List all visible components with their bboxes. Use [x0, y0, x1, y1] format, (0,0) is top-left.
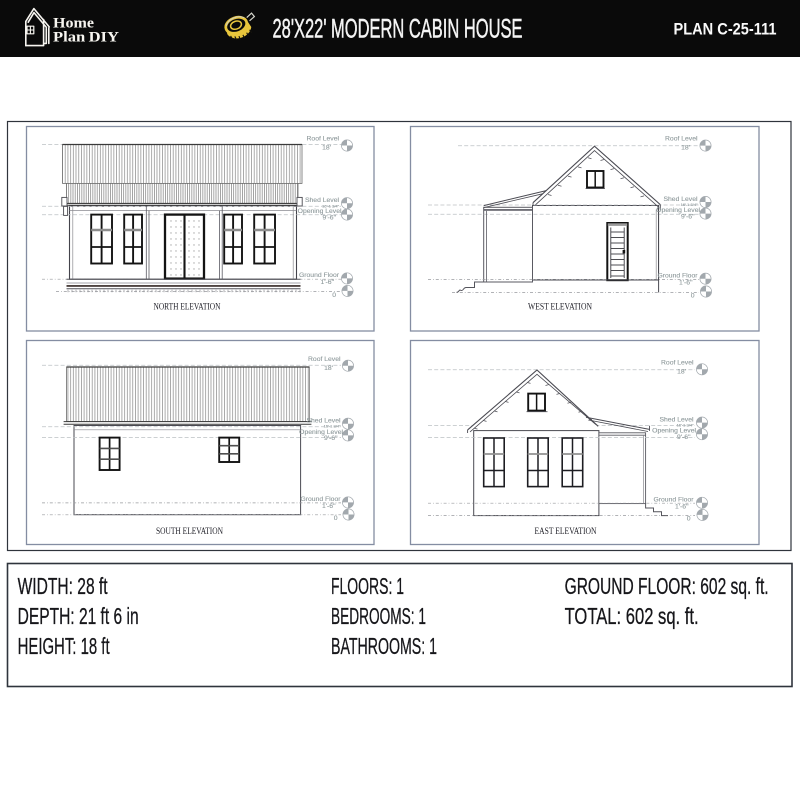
svg-text:WIDTH: 28 ft: WIDTH: 28 ft	[18, 573, 108, 599]
svg-text:9'-6": 9'-6"	[322, 214, 336, 221]
svg-text:BATHROOMS: 1: BATHROOMS: 1	[331, 633, 437, 659]
svg-text:9'-6": 9'-6"	[677, 434, 691, 441]
svg-text:SOUTH ELEVATION: SOUTH ELEVATION	[156, 526, 223, 537]
svg-text:NORTH ELEVATION: NORTH ELEVATION	[154, 302, 221, 313]
svg-text:1'-6": 1'-6"	[675, 503, 689, 510]
svg-text:HEIGHT: 18 ft: HEIGHT: 18 ft	[18, 633, 110, 659]
svg-text:9'-6": 9'-6"	[324, 435, 338, 442]
svg-text:Ground Floor: Ground Floor	[657, 272, 698, 279]
svg-text:Roof Level: Roof Level	[308, 356, 341, 363]
svg-text:18': 18'	[322, 145, 331, 152]
svg-text:DEPTH: 21 ft 6 in: DEPTH: 21 ft 6 in	[18, 603, 139, 629]
svg-text:Ground Floor: Ground Floor	[653, 496, 694, 503]
svg-text:1'-6": 1'-6"	[679, 279, 693, 286]
svg-text:Plan DIY: Plan DIY	[53, 30, 120, 46]
svg-text:Roof Level: Roof Level	[307, 136, 340, 143]
svg-text:Roof Level: Roof Level	[665, 136, 698, 143]
svg-text:1'-6": 1'-6"	[322, 503, 336, 510]
svg-text:Roof Level: Roof Level	[661, 360, 694, 367]
svg-text:28'X22' MODERN CABIN HOUSE: 28'X22' MODERN CABIN HOUSE	[273, 13, 523, 43]
svg-text:Ground Floor: Ground Floor	[300, 496, 341, 503]
svg-text:0: 0	[691, 292, 695, 299]
svg-text:TOTAL: 602 sq. ft.: TOTAL: 602 sq. ft.	[565, 603, 699, 629]
svg-text:BEDROOMS: 1: BEDROOMS: 1	[331, 603, 426, 629]
svg-text:9'-6": 9'-6"	[681, 213, 695, 220]
svg-text:0: 0	[687, 516, 691, 523]
svg-text:GROUND FLOOR: 602 sq. ft.: GROUND FLOOR: 602 sq. ft.	[565, 573, 769, 599]
svg-text:1'-6": 1'-6"	[320, 279, 334, 286]
svg-text:WEST ELEVATION: WEST ELEVATION	[528, 302, 592, 313]
svg-text:0: 0	[332, 292, 336, 299]
svg-text:0: 0	[334, 515, 338, 522]
svg-text:PLAN C-25-111: PLAN C-25-111	[674, 21, 777, 39]
svg-text:EAST ELEVATION: EAST ELEVATION	[535, 526, 597, 537]
svg-text:FLOORS: 1: FLOORS: 1	[331, 573, 404, 599]
svg-text:18': 18'	[677, 369, 686, 376]
svg-text:18': 18'	[324, 365, 333, 372]
svg-text:Ground Floor: Ground Floor	[299, 272, 340, 279]
svg-text:18': 18'	[681, 145, 690, 152]
